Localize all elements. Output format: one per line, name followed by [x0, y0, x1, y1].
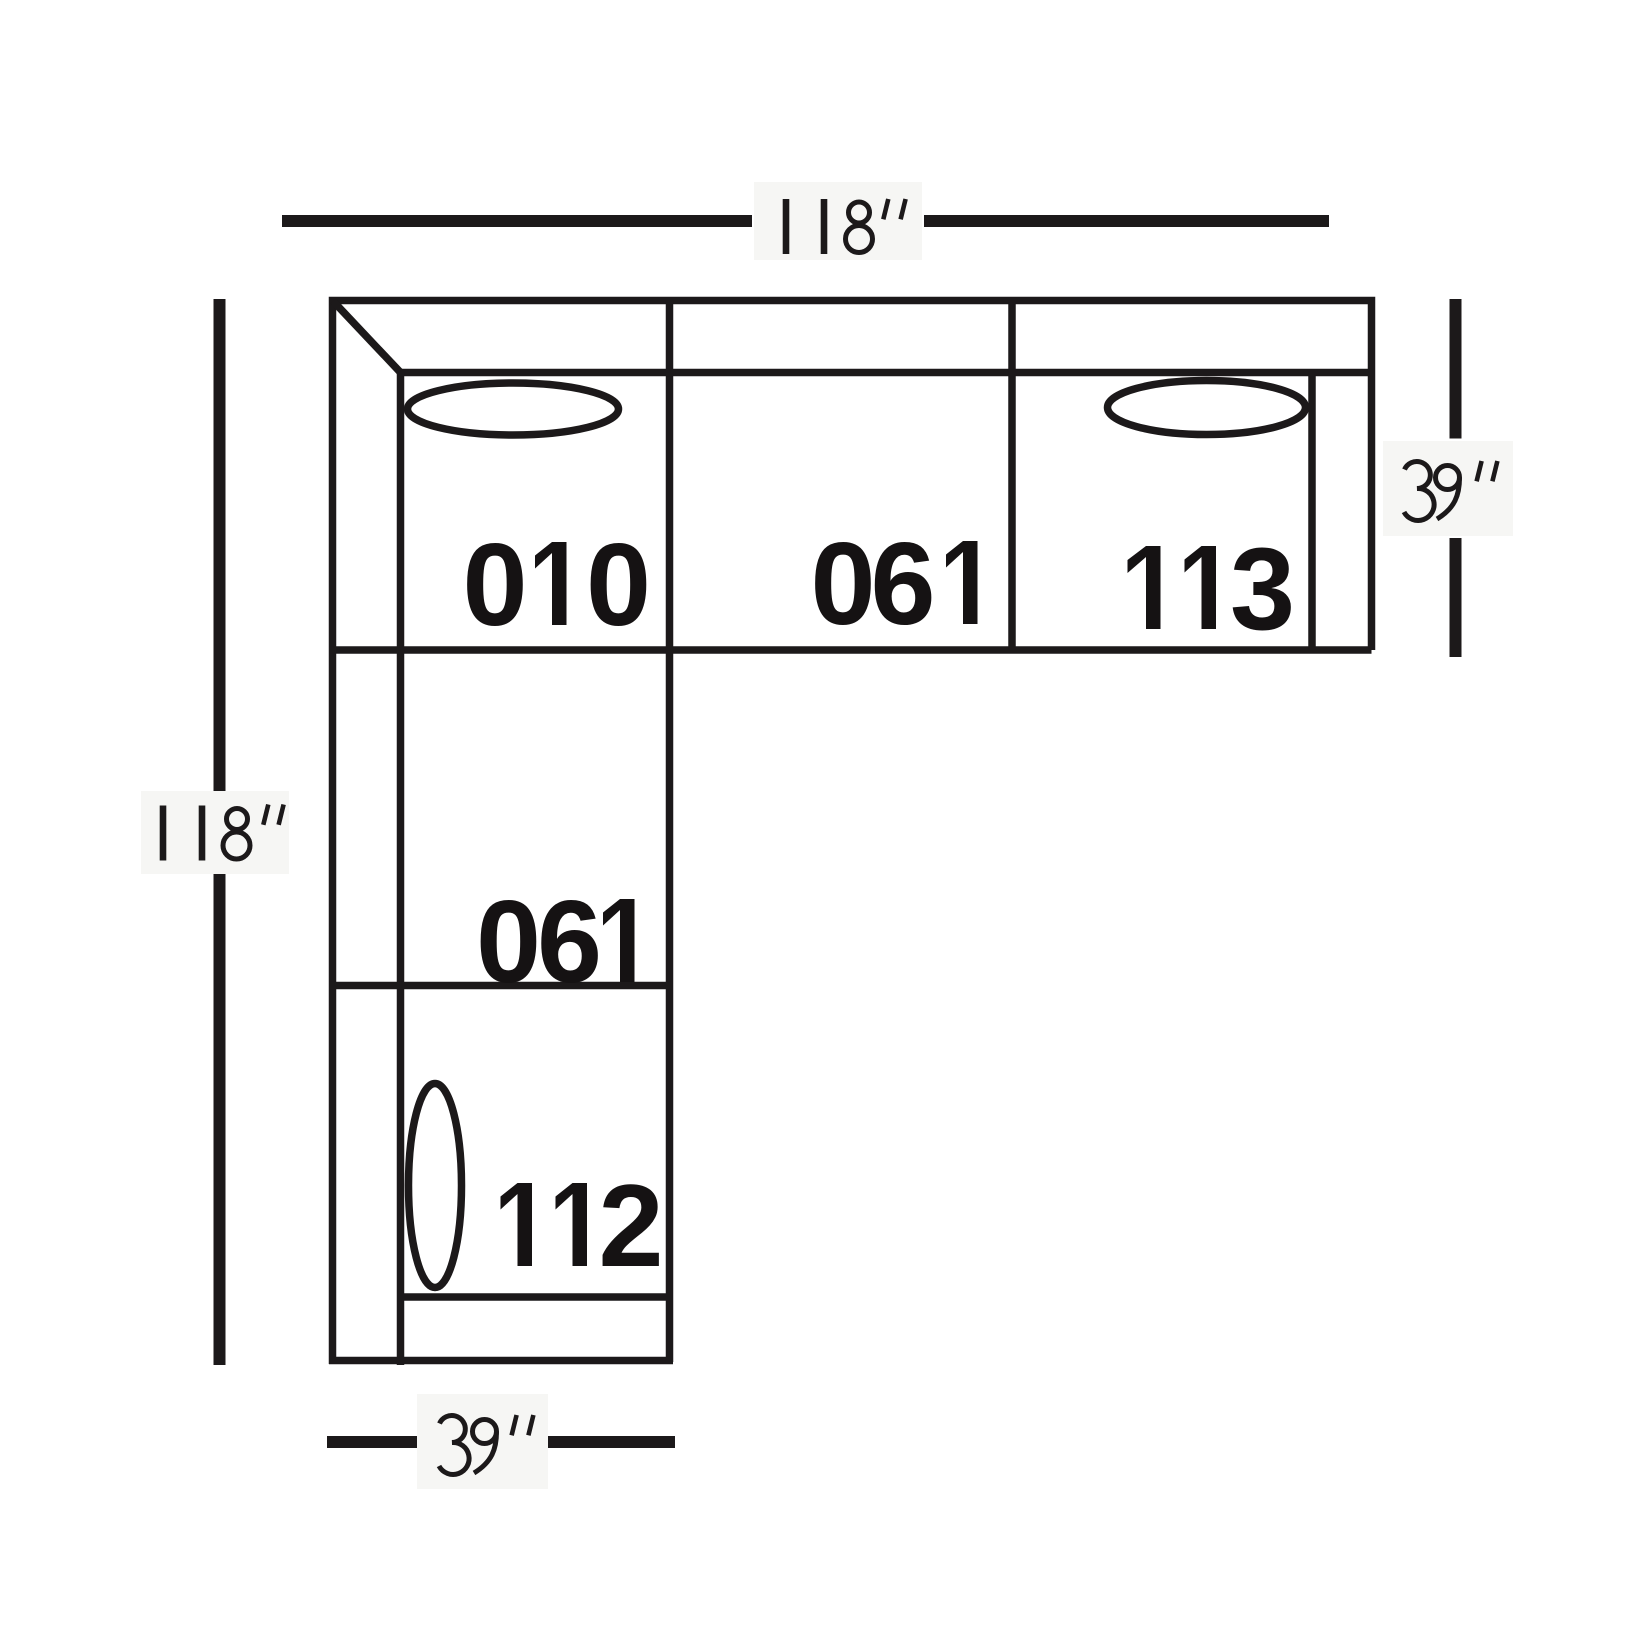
svg-text:6: 6 [537, 876, 602, 1007]
svg-text:0: 0 [462, 519, 527, 650]
svg-text:2: 2 [598, 1160, 663, 1291]
svg-text:0: 0 [586, 519, 651, 650]
svg-text:0: 0 [810, 518, 875, 649]
svg-text:3: 3 [1230, 523, 1295, 654]
svg-text:6: 6 [870, 518, 935, 649]
svg-text:0: 0 [476, 876, 541, 1007]
